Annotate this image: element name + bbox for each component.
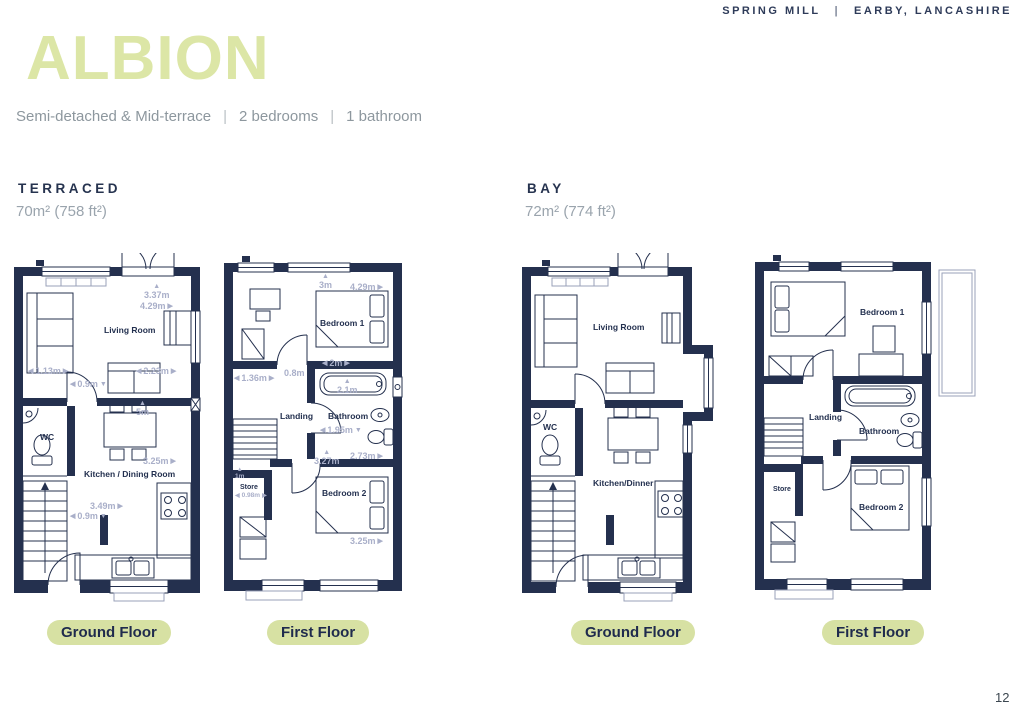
arrow-down-icon: ▼ [100,381,107,388]
page-number: 12 [995,690,1009,705]
dim-label: ▲5m [136,400,149,417]
toilet-icon [540,435,560,465]
dim-label: 2.73m▶ [350,452,383,461]
window-icon [42,267,110,276]
desk-icon [250,289,280,321]
window-icon [548,267,610,276]
arrow-right-icon: ▶ [344,360,349,367]
room-label-bedroom2: Bedroom 2 [322,488,366,498]
window-icon [110,580,168,601]
stairs-icon [233,419,277,459]
kitchen-counter [75,483,191,580]
brochure-page: SPRING MILL | EARBY, LANCASHIRE ALBION S… [0,0,1020,716]
room-label-kitchen: Kitchen / Dining Room [84,469,175,479]
room-label-bedroom1: Bedroom 1 [860,307,904,317]
dim-label: ◀1.36m▶ [234,374,274,383]
subtitle-bathrooms: 1 bathroom [346,108,422,125]
arrow-left-icon: ◀ [235,493,240,499]
arrow-up-icon: ▲ [322,273,329,280]
arrow-up-icon: ▲ [153,283,160,290]
floor-label-bay-ground: Ground Floor [571,620,695,645]
window-icon [620,582,676,601]
window-icon [191,311,200,363]
arrow-right-icon: ▶ [378,538,383,545]
sink-icon [618,557,660,578]
arrow-right-icon: ▶ [378,453,383,460]
stairs-icon [23,481,67,581]
basin-icon [371,409,389,422]
wardrobe-icon [240,517,266,559]
dim-label: ◀2.23m▶ [136,367,176,376]
header-project: SPRING MILL [722,5,820,17]
arrow-right-icon: ▶ [269,375,274,382]
room-label-wc: WC [40,432,54,442]
hob-icon [658,491,684,517]
room-label-bathroom: Bathroom [328,411,368,421]
section-terraced-area: 70m² (758 ft²) [16,203,107,220]
dim-label: ◀0.98m▶ [235,493,267,500]
arrow-down-icon: ▼ [355,427,362,434]
dim-label: ▲3.37m [144,283,170,300]
room-label-bedroom1: Bedroom 1 [320,318,364,328]
dim-label: ▲3.27m [314,449,340,466]
bed-icon [316,477,388,533]
stairs-icon [764,418,803,456]
arrow-left-icon: ◀ [320,427,325,434]
header: SPRING MILL | EARBY, LANCASHIRE [722,5,1012,17]
floor-label-terraced-first: First Floor [267,620,369,645]
bathtub-icon [845,386,915,406]
room-label-landing: Landing [280,411,313,421]
dim-label: ◀1.13m▶ [28,367,68,376]
arrow-left-icon: ◀ [70,513,75,520]
floorplan-terraced-ground-drawing [12,253,202,605]
subtitle-bedrooms: 2 bedrooms [239,108,318,125]
wardrobe-icon [771,522,795,562]
sofa-icon [535,295,577,367]
dim-label: ▲3m [319,273,332,290]
page-title: ALBION [26,28,270,90]
arrow-right-icon: ▶ [118,503,123,510]
room-label-store: Store [240,484,258,491]
french-doors-icon [122,253,174,276]
floor-label-terraced-ground: Ground Floor [47,620,171,645]
tv-unit-icon [164,311,191,345]
dim-label: 4.29m▶ [140,302,173,311]
window-icon [683,425,692,453]
radiator-icon [552,278,608,286]
arrow-right-icon: ▶ [378,284,383,291]
floorplan-terraced-ground: ▲3.37m 4.29m▶ Living Room ◀1.13m▶ ◀0.9m▼… [12,253,202,605]
arrow-left-icon: ◀ [322,360,327,367]
arrow-right-icon: ▶ [168,303,173,310]
bed-icon [851,466,909,530]
room-label-bathroom: Bathroom [859,426,899,436]
dim-label: 3.25m▶ [350,537,383,546]
dim-label: ◀0.9m▼ [70,512,107,521]
room-label-store: Store [773,486,791,493]
window-icon [238,263,350,272]
loveseat-icon [606,363,654,393]
toilet-icon [368,429,393,445]
subtitle-separator-2: | [330,108,334,125]
stairs-icon [531,481,575,581]
section-terraced-heading: TERRACED [18,181,121,196]
room-label-bedroom2: Bedroom 2 [859,502,903,512]
bay-roof-outline [939,270,975,396]
basin-icon [23,408,38,423]
floorplan-terraced-first: ▲3m 4.29m▶ Bedroom 1 ◀2m▶ ◀1.36m▶ 0.8m ▲… [222,251,404,603]
room-label-wc: WC [543,422,557,432]
dim-label: 4.29m▶ [350,283,383,292]
dim-label: 3.25m▶ [143,457,176,466]
bed-icon [771,282,845,336]
sink-icon [112,557,154,578]
arrow-up-icon: ▲ [323,449,330,456]
basin-icon [901,414,919,427]
room-label-living-room: Living Room [593,322,644,332]
room-label-kitchen: Kitchen/Dinner [593,478,653,488]
dim-label: ◀2m▶ [322,359,350,368]
drawers-icon [859,326,903,376]
room-label-living-room: Living Room [104,325,155,335]
dim-label: ▲1m [235,467,244,481]
arrow-up-icon: ▲ [344,378,351,385]
dining-table-icon [608,406,658,463]
arrow-right-icon: ▶ [171,458,176,465]
header-location: EARBY, LANCASHIRE [854,5,1012,17]
radiator-icon [46,278,106,286]
section-bay-heading: BAY [527,181,565,196]
dim-label: 0.8m [284,369,305,378]
dim-label: ◀0.9m▼ [70,380,107,389]
french-doors-icon [618,253,668,276]
header-separator: | [835,5,840,17]
arrow-left-icon: ◀ [28,368,33,375]
section-bay-area: 72m² (774 ft²) [525,203,616,220]
arrow-right-icon: ▶ [171,368,176,375]
bay-window-icon [704,358,713,408]
dim-label: ▲2.1m [337,378,358,395]
toilet-icon [897,432,922,448]
sofa-icon [27,293,73,373]
arrow-right-icon: ▶ [63,368,68,375]
hob-icon [161,493,187,519]
tv-unit-icon [662,313,680,343]
floorplan-terraced-first-drawing [222,251,404,603]
arrow-left-icon: ◀ [70,381,75,388]
room-label-landing: Landing [809,412,842,422]
wardrobe-icon [242,329,264,359]
floorplan-bay-first: Bedroom 1 Landing Bathroom Store Bedroom… [753,250,979,602]
subtitle-type: Semi-detached & Mid-terrace [16,108,211,125]
floorplan-bay-ground: Living Room WC Kitchen/Dinner [520,253,716,605]
dim-label: 3.49m▶ [90,502,123,511]
arrow-left-icon: ◀ [234,375,239,382]
arrow-up-icon: ▲ [139,400,146,407]
arrow-down-icon: ▼ [100,513,107,520]
arrow-left-icon: ◀ [136,368,141,375]
subtitle: Semi-detached & Mid-terrace | 2 bedrooms… [16,108,422,125]
floor-label-bay-first: First Floor [822,620,924,645]
arrow-right-icon: ▶ [262,493,267,499]
subtitle-separator-1: | [223,108,227,125]
dim-label: ◀1.95m▼ [320,426,362,435]
